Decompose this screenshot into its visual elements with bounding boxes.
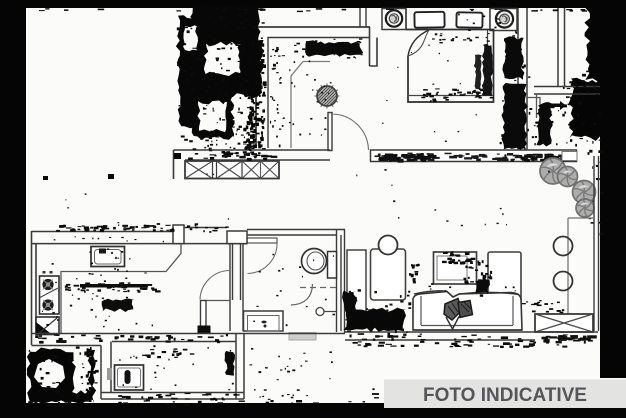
svg-text:FOTO INDICATIVE: FOTO INDICATIVE	[423, 385, 587, 406]
